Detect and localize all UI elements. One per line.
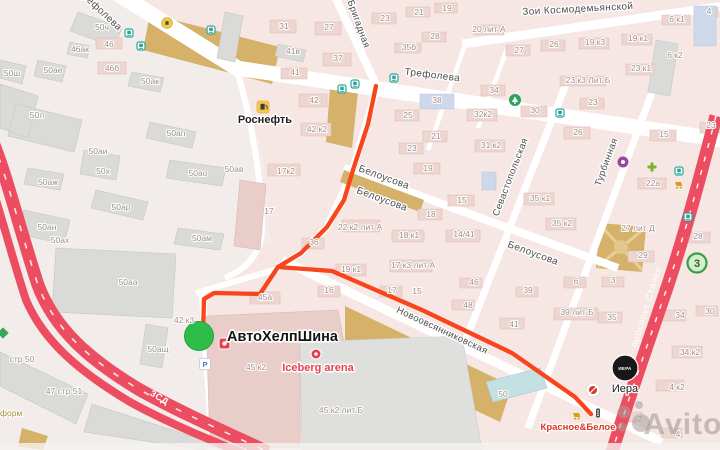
- building-label: стр 50: [10, 354, 35, 364]
- avtohelpshina-label[interactable]: АвтоХелпШина: [227, 329, 339, 345]
- building-label: 32к2: [474, 109, 492, 119]
- iera-label[interactable]: Иера: [612, 383, 639, 395]
- building-label: 23: [407, 143, 417, 153]
- tram-stop-icon[interactable]: [137, 42, 145, 50]
- building-label: 22 к2 лит А: [338, 222, 383, 232]
- building-label: 41: [290, 67, 300, 77]
- building-label: 15: [659, 129, 669, 139]
- culture-poi-icon[interactable]: [618, 157, 629, 168]
- tram-stop-icon[interactable]: [207, 26, 215, 34]
- building-label: 38: [432, 95, 442, 105]
- building-label: 3: [611, 275, 616, 285]
- building-label: 6: [574, 276, 579, 286]
- iera-logo-text: ИЕРА: [618, 366, 632, 371]
- building-label: 36: [309, 237, 319, 247]
- krasnoe-beloe-label[interactable]: Красное&Белое: [541, 422, 616, 433]
- iceberg-arena-label[interactable]: Iceberg arena: [282, 362, 354, 374]
- building-label: 39: [523, 285, 533, 295]
- building-label: 50: [498, 389, 508, 399]
- building-label: 20 лит А: [472, 24, 506, 34]
- building-label: 50ар: [112, 202, 131, 212]
- building-label: 29: [638, 250, 648, 260]
- building-label: 28: [693, 231, 703, 241]
- building-label: 50аа: [119, 277, 138, 287]
- destination-marker[interactable]: [185, 322, 214, 351]
- tram-stop-icon[interactable]: [125, 29, 133, 37]
- building-label: 34: [489, 85, 499, 95]
- building-label: 26: [549, 39, 559, 49]
- building-label: 50ак: [141, 76, 159, 86]
- building-label: 48: [463, 300, 473, 310]
- transit-badge-3[interactable]: 3: [688, 254, 707, 273]
- building-label: 35: [607, 312, 617, 322]
- building-label: 46б: [105, 63, 119, 73]
- building-label: 46: [104, 39, 114, 49]
- building-label: 34 к2: [680, 347, 701, 357]
- building-label: 35 к1: [530, 193, 551, 203]
- building-label: 46: [469, 277, 479, 287]
- building-label: 50аж: [38, 177, 58, 187]
- building-label: 19 к1: [628, 33, 649, 43]
- building-label: 17к2: [277, 166, 295, 176]
- building-label: 41в: [286, 46, 300, 56]
- transit-badge-number: 3: [694, 258, 700, 270]
- tram-stop-icon[interactable]: [556, 109, 564, 117]
- building-label: 31 к2: [481, 140, 502, 150]
- arena-building: [300, 336, 482, 450]
- iceberg-arena-icon[interactable]: [311, 349, 321, 359]
- building-label: 45а: [258, 292, 272, 302]
- building-label: 50ч: [95, 22, 109, 32]
- shop-poi-icon[interactable]: [162, 18, 173, 29]
- building-label: 37: [333, 53, 343, 63]
- tram-stop-icon[interactable]: [351, 80, 359, 88]
- building-label: 19: [423, 163, 433, 173]
- building-label: 23 к3 Лит Б: [566, 75, 611, 85]
- building-label: 35 к2: [552, 218, 573, 228]
- tram-stop-icon[interactable]: [390, 74, 398, 82]
- building-label: 27 лит Д: [621, 223, 655, 233]
- courtyard-circle: [614, 240, 628, 254]
- tram-stop-icon[interactable]: [675, 167, 683, 175]
- building-label: 34: [675, 310, 685, 320]
- building-label: 50ан: [38, 222, 57, 232]
- building-label: 46ак: [71, 44, 89, 54]
- building-label: 31: [279, 21, 289, 31]
- building-label: 50ах: [51, 235, 70, 245]
- building-label: 45 к2: [246, 362, 267, 372]
- building-label: 6 к2: [667, 50, 683, 60]
- building-label: 21: [431, 131, 441, 141]
- building-label: 23: [588, 97, 598, 107]
- building-label: 17: [387, 285, 397, 295]
- building-label: 47 стр 51: [46, 386, 83, 396]
- rosneft-label[interactable]: Роснефть: [238, 114, 292, 126]
- building-label: 50ап: [167, 128, 186, 138]
- building-label: 41: [509, 319, 519, 329]
- building-label: 50ав: [225, 164, 244, 174]
- park-tree-icon[interactable]: [509, 94, 521, 106]
- building-label: 16: [324, 285, 334, 295]
- building-label: 50ш: [4, 68, 20, 78]
- building-label: 22а: [646, 178, 660, 188]
- building-label: 30: [705, 306, 715, 316]
- building-label: 50х: [96, 166, 110, 176]
- rosneft-fuel-icon[interactable]: [257, 101, 269, 113]
- iera-marker[interactable]: ИЕРА: [612, 355, 638, 381]
- building-label: 14/41: [453, 229, 475, 239]
- building-label: 50ае: [44, 65, 63, 75]
- building-label: 21: [414, 7, 424, 17]
- building-label: 50л: [30, 110, 44, 120]
- building-label: 19 к1: [341, 264, 362, 274]
- building-label: 4 к2: [669, 382, 685, 392]
- building-label: 42 к2: [307, 124, 328, 134]
- building-label: 45 к2 лит Б: [319, 405, 364, 415]
- building-label: 15: [412, 286, 422, 296]
- building-label: 25: [403, 110, 413, 120]
- building-label: 50ао: [189, 168, 208, 178]
- building-label: 27: [324, 22, 334, 32]
- building-label: 23 к1: [631, 63, 652, 73]
- building-label: 15: [457, 195, 467, 205]
- bus-stop-icon[interactable]: [684, 213, 692, 221]
- building-label: 28: [430, 31, 440, 41]
- building-label: форм: [0, 408, 22, 418]
- krasnoe-beloe-icon[interactable]: [586, 383, 600, 397]
- building-label: 23: [380, 13, 390, 23]
- building-label: 6 к1: [669, 14, 685, 24]
- building-label: 19 к3: [585, 37, 606, 47]
- building-label: 19: [442, 3, 452, 13]
- building-label: 17 к3 лит А: [391, 260, 436, 270]
- avito-watermark-text: Avito: [644, 408, 720, 441]
- parking-glyph: P: [202, 360, 207, 369]
- building-label: 35б: [402, 42, 416, 52]
- traffic-light-icon: [596, 409, 600, 418]
- building-label: 18 к1: [399, 230, 420, 240]
- building-label: 39 лит Б: [560, 307, 594, 317]
- building-label: 4: [707, 6, 712, 16]
- building-label: 18: [426, 209, 436, 219]
- bottom-strip: [0, 443, 720, 450]
- building-label: 42 к3: [174, 315, 195, 325]
- tram-stop-icon[interactable]: [338, 85, 346, 93]
- building-label: 23: [706, 120, 716, 130]
- building-label: 26: [573, 127, 583, 137]
- building-label: 17: [264, 206, 274, 216]
- building-label: 50аи: [89, 146, 108, 156]
- building-label: 50ам: [192, 233, 212, 243]
- building-label: 27: [514, 45, 524, 55]
- building-label: 30: [530, 105, 540, 115]
- map-canvas[interactable]: P 3 ИЕРА Трефолева Трефолева Зои Космоде…: [0, 0, 720, 450]
- building-label: 50ащ: [147, 344, 168, 354]
- parking-icon[interactable]: P: [200, 359, 211, 370]
- building-label: 42: [309, 95, 319, 105]
